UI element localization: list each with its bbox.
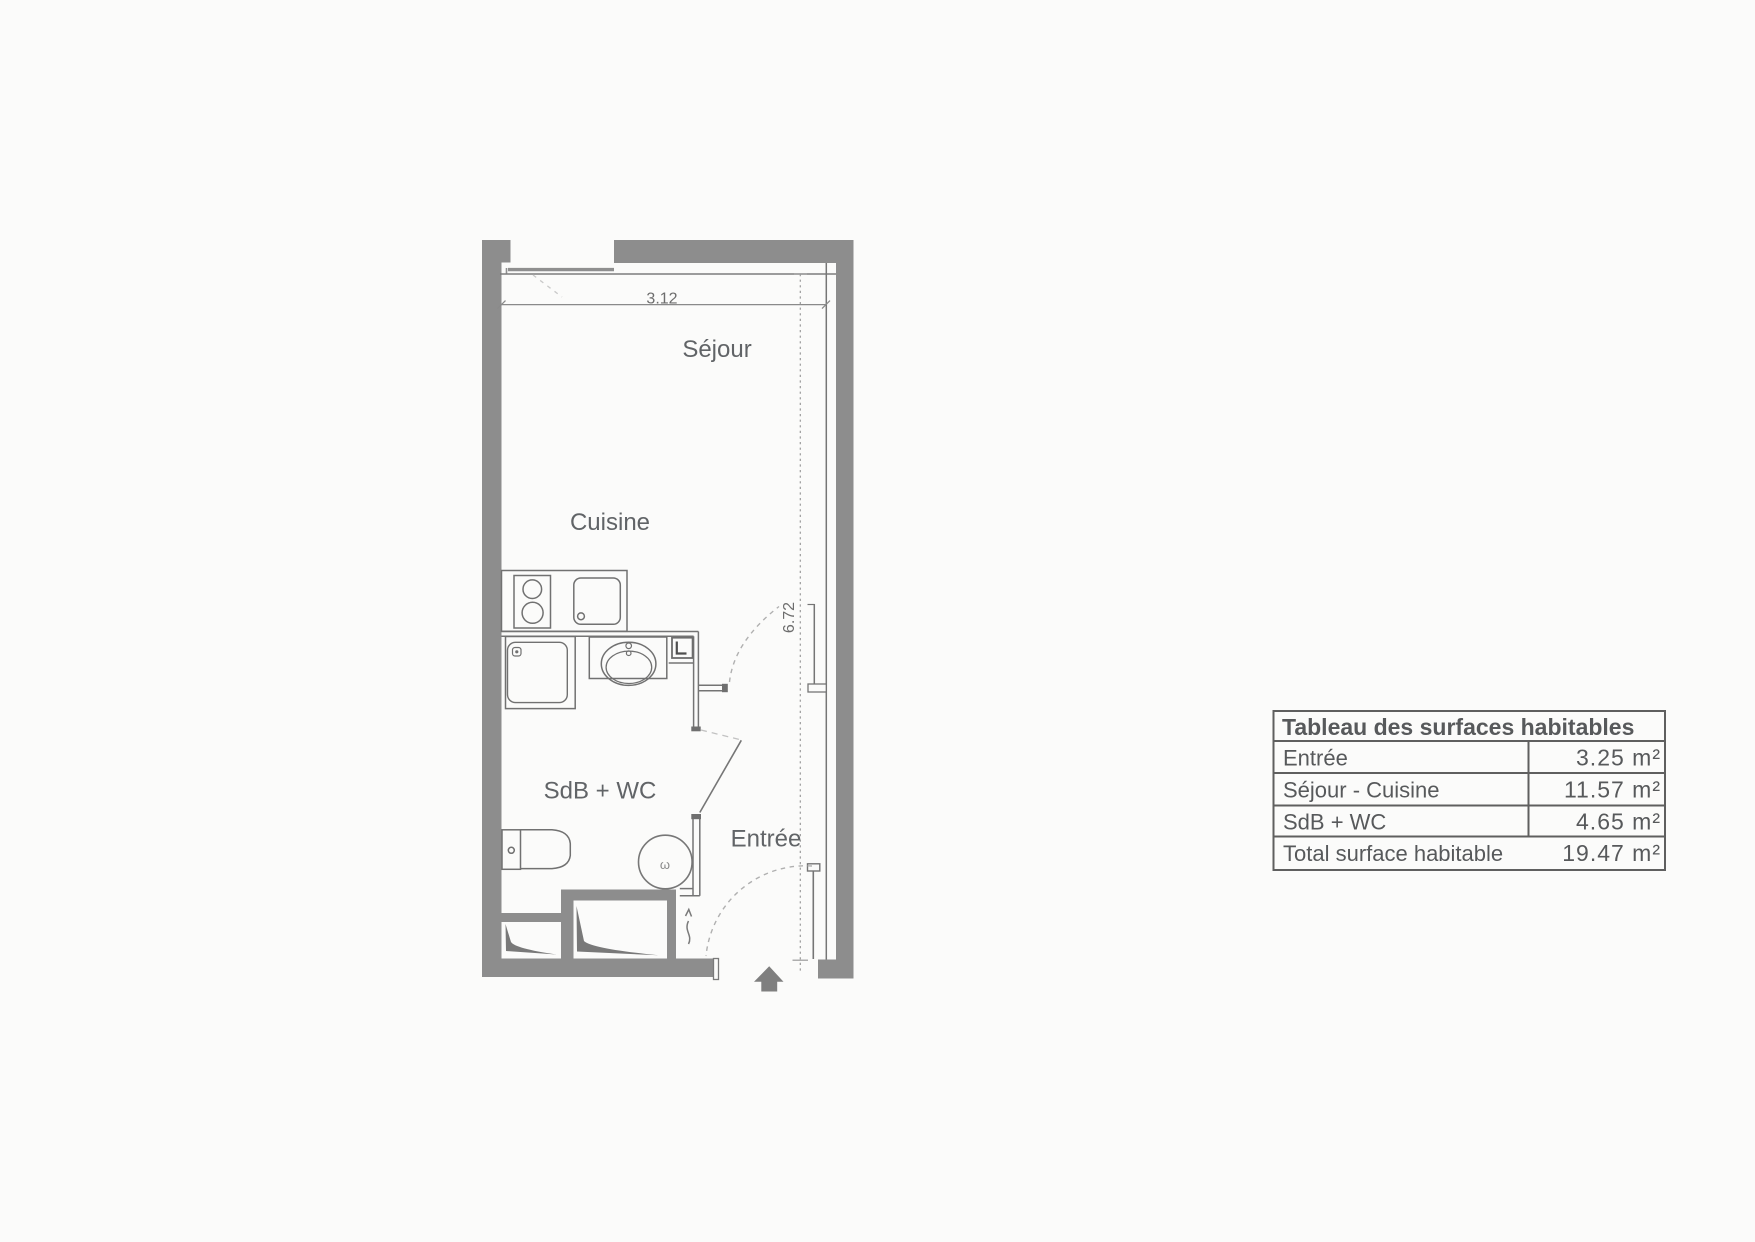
svg-text:Entrée: Entrée bbox=[1283, 746, 1348, 771]
svg-text:3.12: 3.12 bbox=[646, 291, 677, 308]
svg-text:6.72: 6.72 bbox=[781, 602, 798, 633]
svg-text:SdB + WC: SdB + WC bbox=[1283, 810, 1386, 835]
svg-text:Séjour: Séjour bbox=[682, 336, 751, 363]
svg-text:Séjour - Cuisine: Séjour - Cuisine bbox=[1283, 778, 1440, 803]
svg-text:ω: ω bbox=[660, 857, 670, 872]
svg-text:11.57 m²: 11.57 m² bbox=[1564, 777, 1661, 803]
svg-text:SdB + WC: SdB + WC bbox=[544, 778, 657, 805]
svg-text:19.47 m²: 19.47 m² bbox=[1562, 840, 1661, 866]
svg-text:Tableau des surfaces habitable: Tableau des surfaces habitables bbox=[1282, 714, 1634, 740]
svg-text:4.65 m²: 4.65 m² bbox=[1576, 809, 1661, 835]
svg-text:Cuisine: Cuisine bbox=[570, 509, 650, 536]
svg-text:3.25 m²: 3.25 m² bbox=[1576, 745, 1661, 771]
svg-text:Entrée: Entrée bbox=[731, 826, 802, 853]
svg-text:Total surface habitable: Total surface habitable bbox=[1283, 841, 1503, 866]
